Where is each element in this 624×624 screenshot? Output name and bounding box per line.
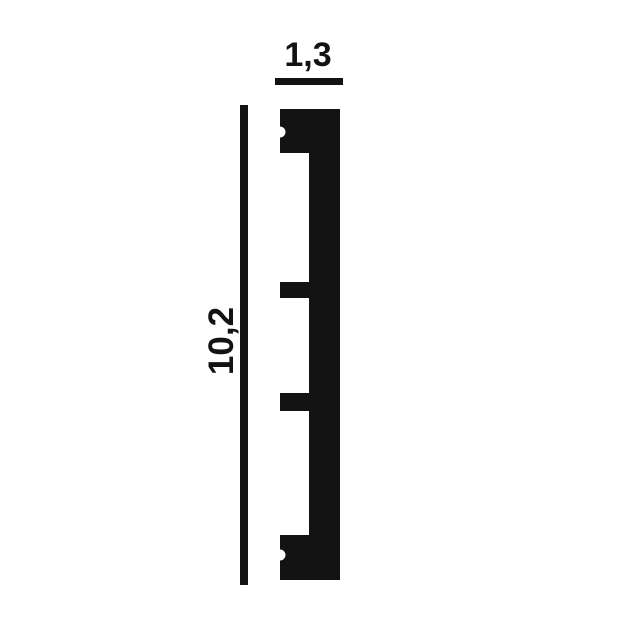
profile-bottom-notch <box>275 550 286 561</box>
profile-top-block <box>280 109 340 153</box>
profile-top-notch <box>275 127 286 138</box>
width-dimension-line <box>275 78 343 85</box>
profile-drawing <box>0 0 624 624</box>
height-dimension-line <box>240 105 248 585</box>
profile-bottom-block <box>280 535 340 580</box>
profile-upper-tab <box>280 282 310 298</box>
profile-diagram: 1,3 10,2 <box>0 0 624 624</box>
profile-vertical-web <box>309 153 340 535</box>
profile-lower-tab <box>280 393 310 411</box>
molding-profile-shape <box>275 109 341 580</box>
